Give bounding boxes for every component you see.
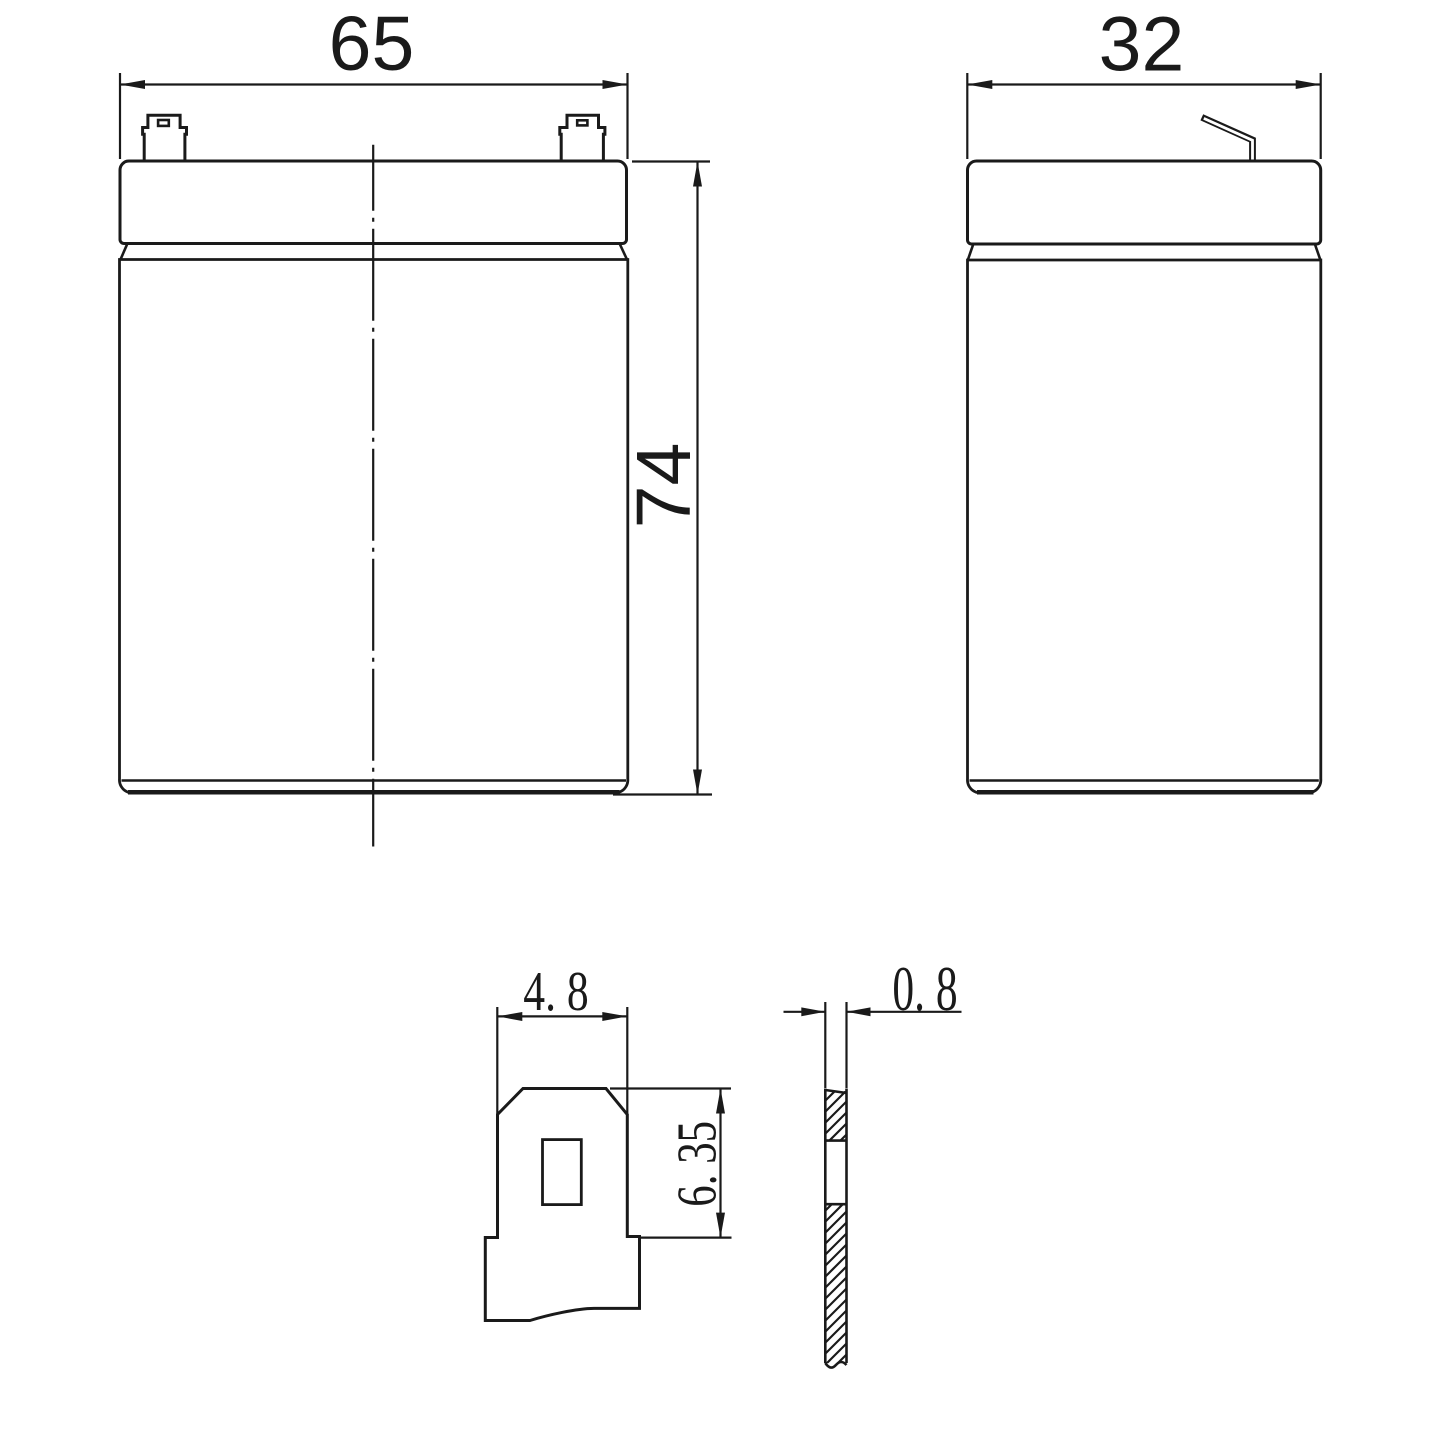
svg-text:0. 8: 0. 8 bbox=[892, 953, 957, 1024]
svg-text:74: 74 bbox=[621, 443, 707, 529]
svg-text:4. 8: 4. 8 bbox=[523, 960, 589, 1022]
svg-text:6. 35: 6. 35 bbox=[666, 1121, 728, 1207]
svg-text:65: 65 bbox=[329, 1, 415, 87]
svg-text:32: 32 bbox=[1099, 2, 1185, 88]
